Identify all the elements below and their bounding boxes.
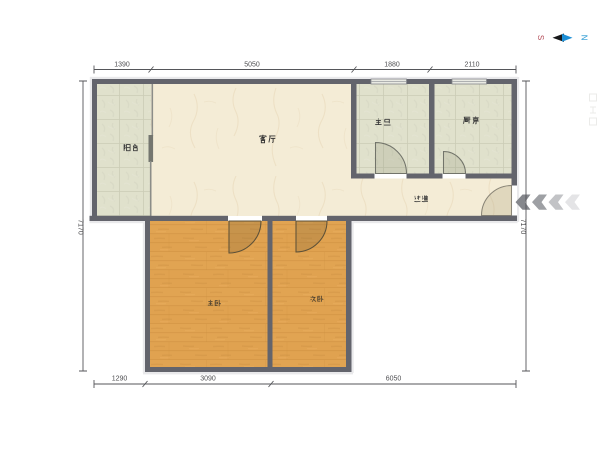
svg-text:3090: 3090 <box>200 376 216 383</box>
svg-text:7170: 7170 <box>77 219 84 235</box>
svg-text:7170: 7170 <box>519 219 526 235</box>
svg-text:1880: 1880 <box>384 62 400 69</box>
svg-text:S: S <box>536 35 545 40</box>
svg-text:5050: 5050 <box>244 62 260 69</box>
svg-text:N: N <box>579 35 588 41</box>
svg-text:6050: 6050 <box>386 376 402 383</box>
svg-text:2110: 2110 <box>464 62 479 69</box>
svg-text:1390: 1390 <box>114 62 130 69</box>
svg-text:1290: 1290 <box>112 376 128 383</box>
